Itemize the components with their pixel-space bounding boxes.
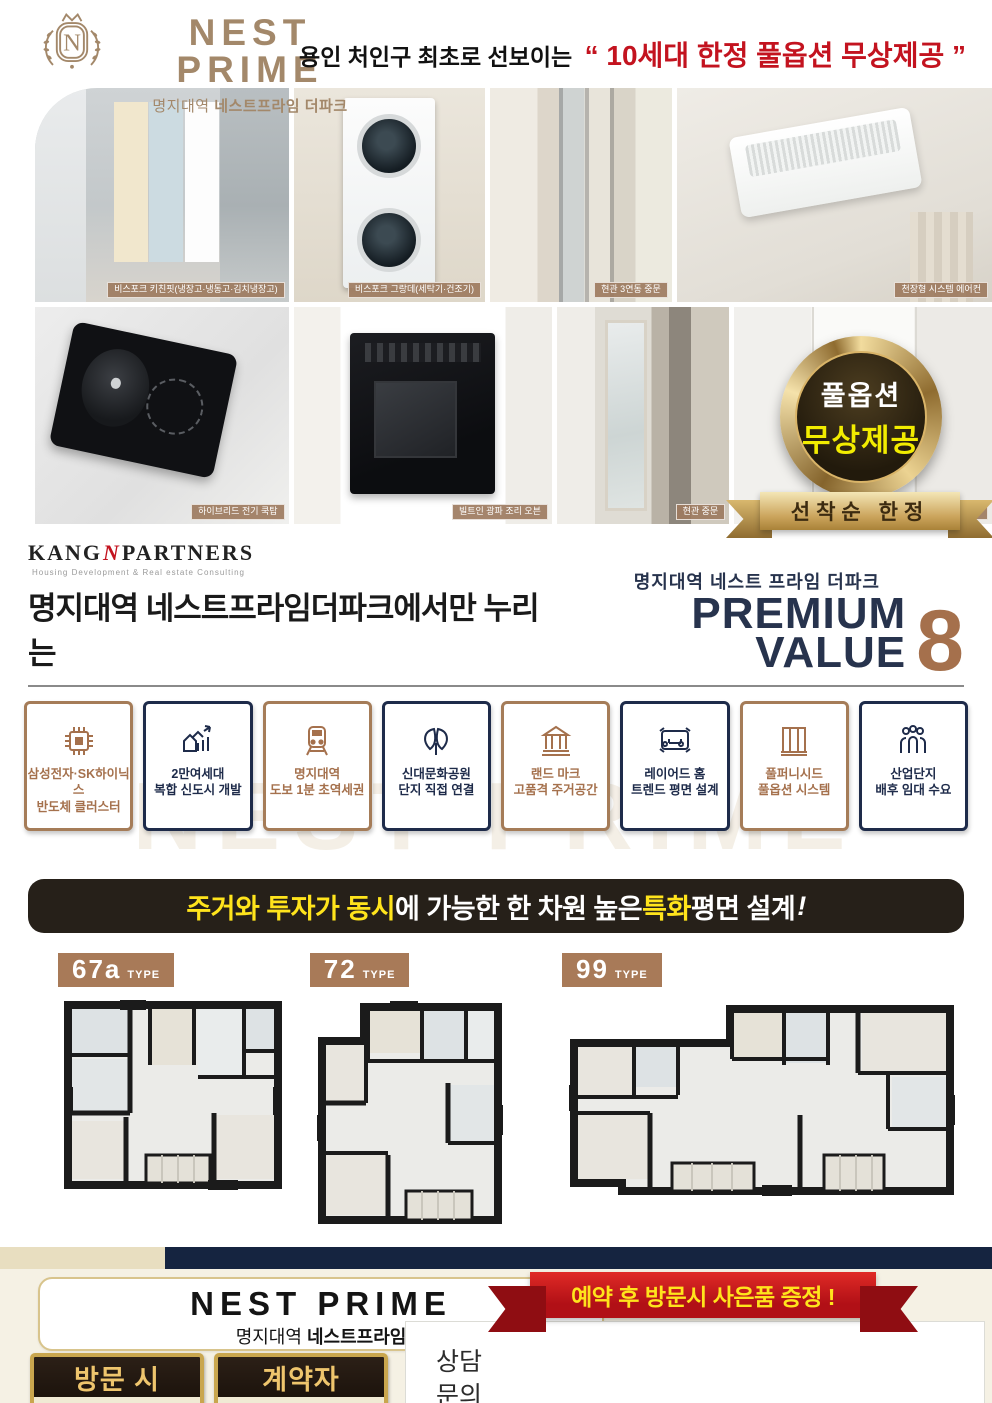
svg-text:N: N (63, 30, 81, 57)
feature-label: 복합 신도시 개발 (154, 782, 241, 798)
aircon-unit (728, 107, 922, 219)
type-number: 99 (576, 956, 609, 982)
premium-value-number: 8 (916, 611, 964, 673)
landmark-icon (536, 716, 576, 766)
flyer-page: N NEST PRIME 명지대역 네스트프라임 더파크 용인 처인구 최초로 … (0, 0, 992, 1403)
fridge-panel (114, 102, 148, 262)
feature-label: 트렌드 평면 설계 (631, 782, 718, 798)
cooktop-surface (49, 321, 239, 479)
feature-card-park: 신대문화공원 단지 직접 연결 (382, 701, 491, 831)
train-icon (297, 716, 337, 766)
gift-badge-text: 사은품 증정 (34, 1397, 200, 1403)
brand-subtitle: 명지대역 네스트프라임 더파크 (120, 95, 380, 116)
pot-decoration (75, 343, 157, 433)
banner-highlight: 특화 (642, 887, 691, 926)
badge-ribbon: 선착순 한정 (760, 492, 960, 530)
mirror-door (605, 320, 646, 511)
badge-line2: 무상제공 (802, 415, 920, 460)
dryer-drum (357, 114, 421, 178)
badge-ribbon-label: 선착순 한정 (791, 496, 929, 526)
footer: NEST PRIME 명지대역 네스트프라임 예약 후 방문시 사은품 증정 !… (0, 1269, 992, 1403)
contact-line2: 문의 (436, 1380, 482, 1403)
type-number: 72 (324, 956, 357, 982)
tagline-highlight: “ 10세대 한정 풀옵션 무상제공 ” (585, 40, 966, 71)
feature-label: 삼성전자·SK하이닉스 (27, 766, 130, 799)
gift-badge-contract: 계약자 사은품 이벤트 (214, 1353, 388, 1403)
gift-badge-title: 방문 시 (34, 1357, 200, 1397)
closet-doors-icon (774, 716, 814, 766)
photo-gallery: 비스포크 키친핏(냉장고·냉동고·김치냉장고) 비스포크 그랑데(세탁기·건조기… (35, 88, 992, 524)
photo-sliding-door: 현관 3연동 중문 (490, 88, 672, 302)
type-word: TYPE (127, 969, 160, 981)
feature-label: 도보 1분 초역세권 (270, 782, 364, 798)
footer-brand-subtitle-light: 명지대역 (236, 1327, 302, 1347)
gift-badge-title: 계약자 (218, 1357, 384, 1397)
photo-caption: 천장형 시스템 에어컨 (894, 282, 988, 298)
feature-cards: 삼성전자·SK하이닉스 반도체 클러스터 2만여세대 복합 신도시 개발 (24, 701, 968, 831)
oven-unit (350, 333, 495, 494)
floor-plan-72 (310, 995, 510, 1230)
photo-entrance-door: 현관 중문 (557, 307, 729, 524)
banner-exclamation: ! (797, 891, 806, 922)
gold-medal-icon: 풀옵션 무상제공 (780, 336, 942, 498)
growth-houses-icon (178, 716, 218, 766)
contact-label: 상담 문의 (436, 1346, 482, 1403)
fridge-panel (149, 102, 183, 262)
feature-label: 신대문화공원 (402, 766, 471, 782)
feature-label: 풀퍼니시드 (765, 766, 823, 782)
feature-label: 풀옵션 시스템 (758, 782, 830, 798)
fridge-panel (185, 102, 219, 262)
badge-line1: 풀옵션 (821, 374, 902, 413)
plan-column-99: 99 TYPE (562, 953, 962, 1239)
door-frame (585, 88, 589, 302)
gift-badge-text: 사은품 이벤트 (218, 1397, 384, 1403)
oven-control-panel (365, 343, 481, 362)
premium-left: KANGNPARTNERS Housing Development & Real… (28, 540, 545, 673)
gift-badges: 방문 시 사은품 증정 계약자 사은품 이벤트 (30, 1353, 388, 1403)
photo-caption: 현관 중문 (676, 504, 726, 520)
feature-card-semiconductor: 삼성전자·SK하이닉스 반도체 클러스터 (24, 701, 133, 831)
feature-label: 산업단지 (890, 766, 936, 782)
header-tagline: 용인 처인구 최초로 선보이는 “ 10세대 한정 풀옵션 무상제공 ” (299, 34, 966, 74)
photo-caption: 비스포크 그랑데(세탁기·건조기) (348, 282, 481, 298)
brand-crest-icon: N (34, 6, 110, 82)
washer-drum (357, 208, 421, 272)
premium-section: KANGNPARTNERS Housing Development & Real… (28, 540, 964, 687)
feature-label: 명지대역 (294, 766, 340, 782)
shelf-decoration (35, 88, 86, 302)
full-option-badge: 풀옵션 무상제공 선착순 한정 (752, 336, 968, 548)
gift-ribbon: 예약 후 방문시 사은품 증정 ! (530, 1272, 876, 1318)
partner-logo-left: KANG (28, 540, 102, 565)
partner-logo-n: N (102, 540, 122, 565)
type-word: TYPE (615, 969, 648, 981)
chip-icon (59, 716, 99, 766)
floor-plans: 67a TYPE (30, 953, 962, 1239)
type-number: 67a (72, 956, 121, 982)
door-frame (559, 88, 563, 302)
type-label-72: 72 TYPE (310, 953, 410, 987)
gift-badge-visit: 방문 시 사은품 증정 (30, 1353, 204, 1403)
strip-beige (0, 1247, 165, 1269)
design-banner: 주거와 투자가 동시 에 가능한 한 차원 높은 특화 평면 설계 ! (28, 879, 964, 933)
feature-label: 반도체 클러스터 (37, 799, 121, 815)
gift-ribbon-label: 예약 후 방문시 사은품 증정 ! (571, 1278, 835, 1312)
feature-label: 레이어드 홈 (644, 766, 705, 782)
feature-card-rental-demand: 산업단지 배후 임대 수요 (859, 701, 968, 831)
premium-right: 명지대역 네스트 프라임 더파크 PREMIUM VALUE 8 (545, 568, 964, 673)
banner-highlight: 주거와 투자가 동시 (186, 887, 395, 926)
partner-tagline: Housing Development & Real estate Consul… (32, 568, 545, 577)
photo-caption: 현관 3연동 중문 (594, 282, 668, 298)
footer-brand-subtitle-bold: 네스트프라임 (307, 1327, 406, 1347)
people-icon (893, 716, 933, 766)
photo-washer-dryer: 비스포크 그랑데(세탁기·건조기) (294, 88, 485, 302)
aircon-grille (744, 119, 901, 178)
header: N NEST PRIME 명지대역 네스트프라임 더파크 용인 처인구 최초로 … (0, 0, 992, 88)
feature-card-newtown: 2만여세대 복합 신도시 개발 (143, 701, 252, 831)
burner-ring (142, 374, 209, 440)
door-frame (610, 88, 614, 302)
type-label-67a: 67a TYPE (58, 953, 174, 987)
feature-card-full-furnished: 풀퍼니시드 풀옵션 시스템 (740, 701, 849, 831)
strip-navy (165, 1247, 992, 1269)
oven-window (374, 381, 458, 458)
feature-card-station: 명지대역 도보 1분 초역세권 (263, 701, 372, 831)
brand-subtitle-light: 명지대역 (152, 98, 209, 115)
contact-line1: 상담 (436, 1346, 482, 1380)
photo-ceiling-aircon: 천장형 시스템 에어컨 (677, 88, 992, 302)
brand-subtitle-bold: 네스트프라임 더파크 (214, 98, 347, 115)
washer-tower (343, 98, 435, 288)
tagline-prefix: 용인 처인구 최초로 선보이는 (299, 44, 572, 70)
banner-text: 에 가능한 한 차원 높은 (395, 887, 642, 926)
photo-bespoke-fridge: 비스포크 키친핏(냉장고·냉동고·김치냉장고) (35, 88, 289, 302)
premium-value-title: PREMIUM VALUE (545, 594, 906, 673)
floor-plan-99 (562, 995, 962, 1205)
feature-card-layered-home: 레이어드 홈 트렌드 평면 설계 (620, 701, 729, 831)
plan-column-67a: 67a TYPE (58, 953, 290, 1239)
feature-label: 랜드 마크 (531, 766, 580, 782)
divider-strip (0, 1247, 992, 1269)
feature-label: 단지 직접 연결 (398, 782, 474, 798)
feature-card-landmark: 랜드 마크 고품격 주거공간 (501, 701, 610, 831)
photo-caption: 빌트인 광파 조리 오븐 (452, 504, 548, 520)
photo-caption: 하이브리드 전기 쿡탑 (191, 504, 285, 520)
photo-builtin-oven: 빌트인 광파 조리 오븐 (294, 307, 552, 524)
partner-logo: KANGNPARTNERS (28, 540, 545, 566)
type-label-99: 99 TYPE (562, 953, 662, 987)
sofa-room-icon (655, 716, 695, 766)
feature-label: 배후 임대 수요 (875, 782, 951, 798)
banner-text: 평면 설계 (691, 887, 795, 926)
leaf-icon (416, 716, 456, 766)
plan-column-72: 72 TYPE (310, 953, 526, 1239)
feature-label: 2만여세대 (171, 766, 224, 782)
cabinet-decoration (220, 88, 288, 302)
partner-logo-right: PARTNERS (122, 540, 254, 565)
type-word: TYPE (363, 969, 396, 981)
photo-caption: 비스포크 키친핏(냉장고·냉동고·김치냉장고) (107, 282, 285, 298)
contact-box[interactable]: 상담 문의 (405, 1321, 985, 1403)
floor-plan-67a (58, 995, 288, 1200)
photo-cooktop: 하이브리드 전기 쿡탑 (35, 307, 289, 524)
section-headline: 명지대역 네스트프라임더파크에서만 누리는 (28, 583, 545, 673)
feature-label: 고품격 주거공간 (514, 782, 598, 798)
